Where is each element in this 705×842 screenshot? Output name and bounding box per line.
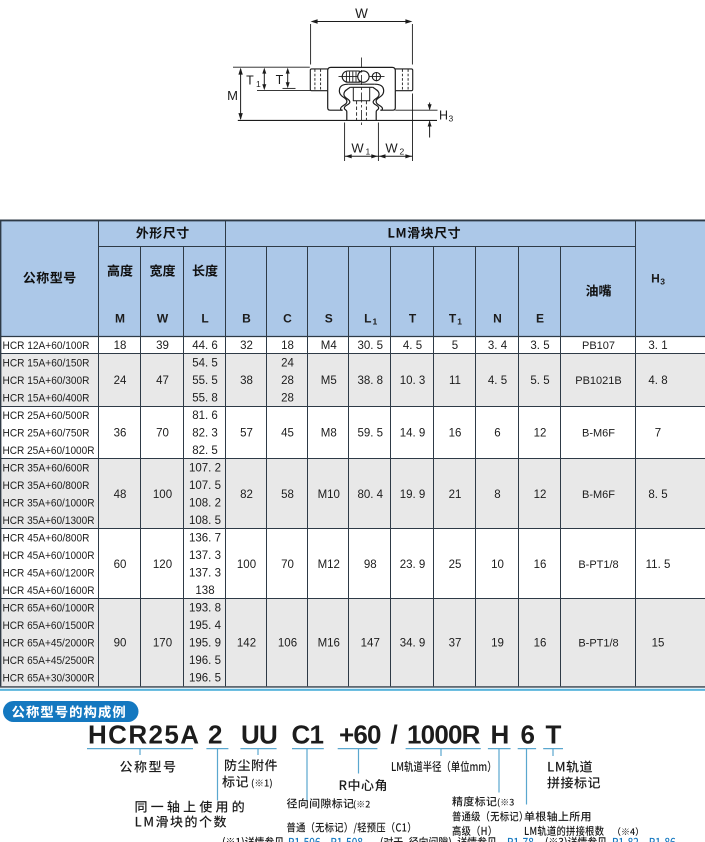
svg-text:70: 70: [281, 559, 294, 571]
svg-text:H: H: [439, 109, 448, 123]
svg-text:C1: C1: [292, 720, 324, 750]
svg-text:M12: M12: [318, 559, 340, 571]
svg-text:N: N: [493, 312, 502, 326]
svg-text:L: L: [201, 312, 208, 326]
svg-text:55. 8: 55. 8: [192, 393, 218, 405]
svg-text:98: 98: [364, 559, 377, 571]
svg-text:18: 18: [114, 340, 127, 352]
svg-text:M: M: [115, 312, 125, 326]
svg-text:142: 142: [237, 638, 256, 650]
svg-text:108. 2: 108. 2: [189, 498, 221, 510]
svg-text:1000R: 1000R: [407, 720, 481, 750]
svg-text:136. 7: 136. 7: [189, 533, 221, 545]
svg-text:T: T: [276, 73, 284, 87]
svg-text:108. 5: 108. 5: [189, 515, 221, 527]
svg-text:147: 147: [361, 638, 380, 650]
svg-text:81. 6: 81. 6: [192, 410, 218, 422]
svg-text:H: H: [491, 720, 510, 750]
svg-text:24: 24: [281, 358, 294, 370]
svg-text:W: W: [385, 141, 398, 156]
svg-text:30. 5: 30. 5: [357, 340, 383, 352]
svg-text:90: 90: [114, 638, 127, 650]
svg-text:M10: M10: [318, 489, 340, 501]
svg-text:47: 47: [156, 375, 169, 387]
svg-text:28: 28: [281, 393, 294, 405]
svg-text:106: 106: [278, 638, 297, 650]
svg-text:15: 15: [652, 638, 665, 650]
svg-text:2: 2: [400, 147, 405, 157]
svg-text:H: H: [651, 272, 660, 286]
svg-text:T: T: [246, 74, 254, 88]
svg-text:107. 5: 107. 5: [189, 480, 221, 492]
svg-text:80. 4: 80. 4: [357, 489, 383, 501]
svg-text:18: 18: [281, 340, 294, 352]
svg-text:HCR 15A+60/300R: HCR 15A+60/300R: [3, 375, 90, 387]
svg-text:B-M6F: B-M6F: [582, 489, 615, 501]
svg-text:11: 11: [449, 375, 461, 387]
svg-text:16: 16: [449, 428, 462, 440]
svg-text:24: 24: [114, 375, 127, 387]
svg-text:38. 8: 38. 8: [357, 375, 383, 387]
svg-text:12: 12: [534, 489, 547, 501]
svg-text:195. 9: 195. 9: [189, 638, 221, 650]
svg-text:19: 19: [491, 638, 504, 650]
svg-text:55. 5: 55. 5: [192, 375, 218, 387]
svg-text:4. 5: 4. 5: [403, 340, 422, 352]
svg-text:10. 3: 10. 3: [400, 375, 426, 387]
svg-text:HCR 25A+60/500R: HCR 25A+60/500R: [3, 410, 90, 422]
svg-text:HCR 45A+60/1600R: HCR 45A+60/1600R: [3, 585, 95, 597]
svg-text:HCR 65A+30/3000R: HCR 65A+30/3000R: [3, 672, 95, 684]
svg-text:HCR 35A+60/800R: HCR 35A+60/800R: [3, 480, 90, 492]
svg-text:HCR 45A+60/1000R: HCR 45A+60/1000R: [3, 550, 95, 562]
svg-text:57: 57: [240, 428, 253, 440]
svg-text:HCR 65A+60/1500R: HCR 65A+60/1500R: [3, 620, 95, 632]
svg-text:120: 120: [153, 559, 172, 571]
svg-text:HCR 65A+45/2500R: HCR 65A+45/2500R: [3, 655, 95, 667]
svg-text:M16: M16: [318, 638, 340, 650]
svg-text:23. 9: 23. 9: [400, 559, 426, 571]
svg-text:60: 60: [114, 559, 127, 571]
svg-text:1: 1: [457, 317, 462, 327]
svg-text:/: /: [391, 720, 398, 750]
svg-text:W: W: [355, 6, 368, 21]
svg-text:M4: M4: [321, 340, 338, 352]
svg-text:T: T: [409, 312, 417, 326]
svg-text:W: W: [351, 141, 364, 156]
svg-text:10: 10: [491, 559, 504, 571]
svg-text:B-PT1/8: B-PT1/8: [578, 559, 618, 571]
svg-text:L: L: [364, 312, 371, 326]
svg-text:82. 3: 82. 3: [192, 428, 218, 440]
svg-text:HCR 35A+60/1000R: HCR 35A+60/1000R: [3, 497, 95, 509]
svg-text:UU: UU: [241, 720, 277, 750]
svg-text:34. 9: 34. 9: [400, 638, 426, 650]
svg-text:137. 3: 137. 3: [189, 568, 221, 580]
svg-text:70: 70: [156, 428, 169, 440]
svg-text:21: 21: [449, 489, 462, 501]
svg-text:C: C: [283, 312, 292, 326]
svg-text:HCR 65A+60/1000R: HCR 65A+60/1000R: [3, 602, 95, 614]
svg-text:5: 5: [452, 340, 458, 352]
svg-text:8: 8: [494, 489, 500, 501]
svg-text:100: 100: [153, 489, 172, 501]
svg-text:6: 6: [494, 428, 500, 440]
svg-text:12: 12: [534, 428, 547, 440]
svg-text:HCR 15A+60/150R: HCR 15A+60/150R: [3, 357, 90, 369]
svg-text:3. 5: 3. 5: [530, 340, 549, 352]
svg-text:44. 6: 44. 6: [192, 340, 218, 352]
svg-text:E: E: [536, 312, 544, 326]
svg-text:19. 9: 19. 9: [400, 489, 426, 501]
svg-text:170: 170: [153, 638, 172, 650]
svg-text:5. 5: 5. 5: [530, 375, 549, 387]
svg-text:HCR25A: HCR25A: [88, 720, 200, 750]
svg-text:M: M: [227, 88, 238, 103]
svg-text:58: 58: [281, 489, 294, 501]
svg-text:138: 138: [195, 585, 214, 597]
svg-text:4. 8: 4. 8: [648, 375, 667, 387]
svg-text:82. 5: 82. 5: [192, 445, 218, 457]
svg-text:16: 16: [534, 559, 547, 571]
svg-text:PB1021B: PB1021B: [575, 375, 621, 387]
svg-text:107. 2: 107. 2: [189, 463, 221, 475]
svg-text:196. 5: 196. 5: [189, 655, 221, 667]
svg-text:HCR 15A+60/400R: HCR 15A+60/400R: [3, 392, 90, 404]
svg-text:HCR 45A+60/800R: HCR 45A+60/800R: [3, 532, 90, 544]
svg-text:M8: M8: [321, 428, 337, 440]
svg-text:1: 1: [256, 79, 261, 89]
svg-text:3. 1: 3. 1: [648, 340, 667, 352]
svg-text:1: 1: [372, 317, 377, 327]
svg-text:48: 48: [114, 489, 127, 501]
svg-text:HCR 35A+60/1300R: HCR 35A+60/1300R: [3, 515, 95, 527]
svg-text:3: 3: [449, 114, 454, 124]
svg-text:3: 3: [660, 277, 665, 287]
svg-text:PB107: PB107: [582, 340, 615, 352]
svg-text:HCR 12A+60/100R: HCR 12A+60/100R: [3, 340, 90, 352]
svg-text:HCR 25A+60/1000R: HCR 25A+60/1000R: [3, 445, 95, 457]
svg-text:B-PT1/8: B-PT1/8: [578, 638, 618, 650]
svg-text:HCR 65A+45/2000R: HCR 65A+45/2000R: [3, 637, 95, 649]
svg-text:193. 8: 193. 8: [189, 603, 221, 615]
svg-text:32: 32: [240, 340, 253, 352]
svg-text:M5: M5: [321, 375, 337, 387]
svg-text:11. 5: 11. 5: [646, 559, 671, 571]
svg-text:S: S: [325, 312, 333, 326]
svg-text:W: W: [157, 312, 169, 326]
svg-text:39: 39: [156, 340, 169, 352]
svg-text:2: 2: [208, 720, 222, 750]
svg-text:45: 45: [281, 428, 294, 440]
svg-text:T: T: [546, 720, 562, 750]
svg-text:54. 5: 54. 5: [192, 358, 218, 370]
svg-text:HCR 45A+60/1200R: HCR 45A+60/1200R: [3, 567, 95, 579]
svg-text:HCR 25A+60/750R: HCR 25A+60/750R: [3, 427, 90, 439]
svg-text:7: 7: [655, 428, 661, 440]
svg-text:137. 3: 137. 3: [189, 550, 221, 562]
svg-text:28: 28: [281, 375, 294, 387]
svg-text:59. 5: 59. 5: [357, 428, 383, 440]
svg-text:8. 5: 8. 5: [648, 489, 667, 501]
svg-text:4. 5: 4. 5: [488, 375, 507, 387]
svg-text:B-M6F: B-M6F: [582, 428, 615, 440]
svg-text:6: 6: [521, 720, 535, 750]
svg-text:1: 1: [366, 147, 371, 157]
svg-text:T: T: [449, 312, 457, 326]
svg-text:38: 38: [240, 375, 253, 387]
svg-text:37: 37: [449, 638, 462, 650]
svg-text:196. 5: 196. 5: [189, 673, 221, 685]
svg-text:25: 25: [449, 559, 462, 571]
svg-text:195. 4: 195. 4: [189, 620, 222, 632]
svg-text:82: 82: [240, 489, 253, 501]
svg-text:100: 100: [237, 559, 256, 571]
svg-text:16: 16: [534, 638, 547, 650]
svg-text:14. 9: 14. 9: [400, 428, 426, 440]
svg-text:B: B: [242, 312, 251, 326]
svg-text:+60: +60: [339, 720, 381, 750]
svg-text:HCR 35A+60/600R: HCR 35A+60/600R: [3, 462, 90, 474]
svg-text:3. 4: 3. 4: [488, 340, 508, 352]
svg-text:36: 36: [114, 428, 127, 440]
